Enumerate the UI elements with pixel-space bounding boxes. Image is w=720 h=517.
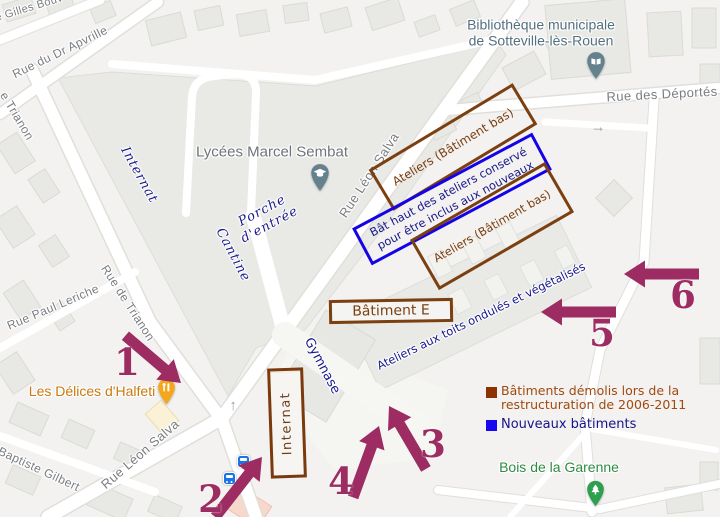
legend-demolished-swatch xyxy=(486,387,497,398)
poi-label-library[interactable]: Bibliothèque municipale de Sotteville-lè… xyxy=(467,17,615,48)
annotation-box-internat: Internat xyxy=(267,367,307,478)
bus-stop-icon[interactable] xyxy=(223,472,236,485)
legend-demolished-label: Bâtiments démolis lors de la restructura… xyxy=(501,384,699,411)
library-book-pin-icon[interactable] xyxy=(586,51,606,85)
park-tree-pin-icon[interactable] xyxy=(586,479,605,513)
poi-label-school[interactable]: Lycées Marcel Sembat xyxy=(196,145,348,162)
legend-new-swatch xyxy=(486,420,497,431)
poi-library-line1: Bibliothèque municipale xyxy=(467,17,615,33)
one-way-right-arrow-icon: → xyxy=(591,119,606,136)
poi-library-line2: de Sotteville-lès-Rouen xyxy=(467,33,615,49)
one-way-up-arrow-icon: → xyxy=(223,399,240,414)
arrow-number-4: 4 xyxy=(328,459,354,503)
arrow-number-1: 1 xyxy=(114,340,140,384)
arrow-number-3: 3 xyxy=(420,422,446,466)
restaurant-pin-icon[interactable] xyxy=(157,377,176,411)
arrow-number-5: 5 xyxy=(589,311,615,355)
annotated-map[interactable]: ue Gilles Bouv Rue du Dr Apvrille e Tria… xyxy=(0,0,720,517)
poi-label-restaurant[interactable]: Les Délices d'Halfeti xyxy=(29,384,155,400)
arrow-number-6: 6 xyxy=(670,273,696,317)
arrow-number-2: 2 xyxy=(198,477,224,517)
poi-label-park[interactable]: Bois de la Garenne xyxy=(499,460,619,476)
annotation-box-batiment-e: Bâtiment E xyxy=(329,298,453,324)
school-graduation-cap-pin-icon[interactable] xyxy=(310,163,330,197)
map-canvas xyxy=(0,0,720,517)
legend-new-label: Nouveaux bâtiments xyxy=(501,418,636,432)
internat-box-label: Internat xyxy=(278,391,295,455)
bus-stop-icon[interactable] xyxy=(237,455,250,468)
